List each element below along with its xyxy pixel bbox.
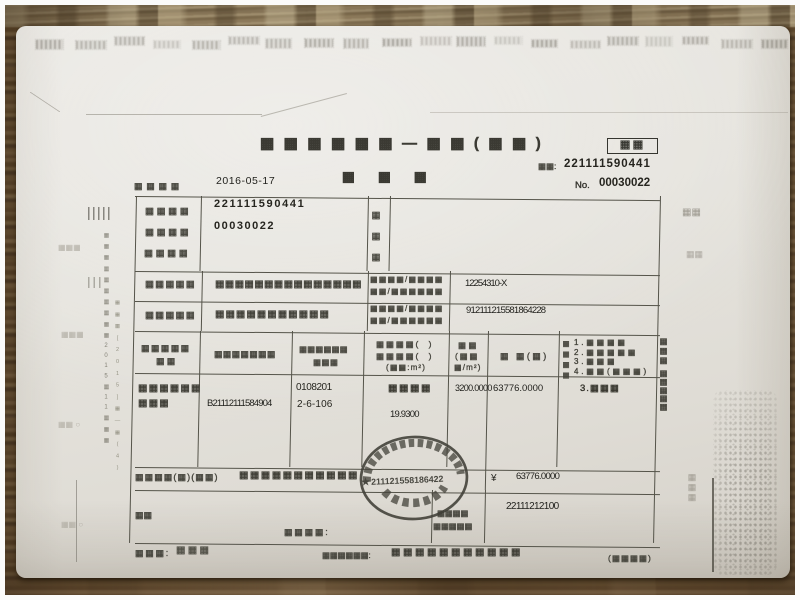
svg-text:★: ★ (361, 477, 370, 488)
svg-text:211121558186422: 211121558186422 (371, 474, 444, 487)
